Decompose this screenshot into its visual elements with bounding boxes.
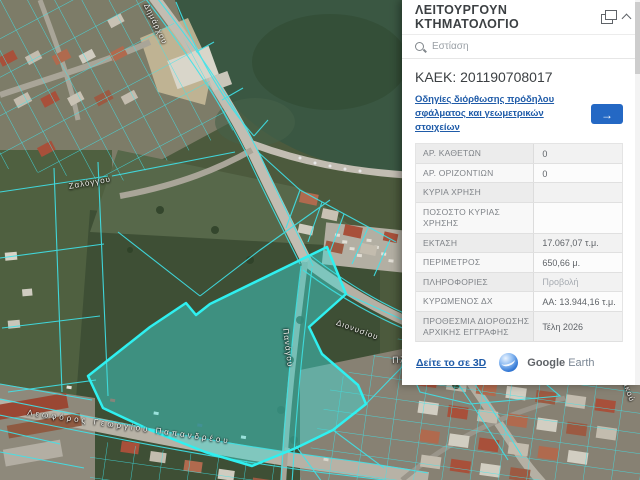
row-label: ΑΡ. ΚΑΘΕΤΩΝ xyxy=(416,144,533,162)
row-label: ΚΥΡΩΜΕΝΟΣ ΔΧ xyxy=(416,292,533,310)
row-value: 17.067,07 τ.μ. xyxy=(533,234,622,252)
row-label: ΑΡ. ΟΡΙΖΟΝΤΙΩΝ xyxy=(416,164,533,182)
table-row: ΠΡΟΘΕΣΜΙΑ ΔΙΟΡΘΩΣΗΣ ΑΡΧΙΚΗΣ ΕΓΓΡΑΦΗΣ Τέλ… xyxy=(416,312,622,343)
arrow-forward-button[interactable]: → xyxy=(591,104,623,124)
table-row: ΚΥΡΙΑ ΧΡΗΣΗ xyxy=(416,183,622,202)
chevron-up-icon[interactable] xyxy=(622,14,632,24)
table-row: ΑΡ. ΟΡΙΖΟΝΤΙΩΝ 0 xyxy=(416,164,622,183)
row-label: ΠΛΗΡΟΦΟΡΙΕΣ xyxy=(416,273,533,291)
row-label: ΠΕΡΙΜΕΤΡΟΣ xyxy=(416,253,533,271)
panel-scrollbar[interactable] xyxy=(635,0,640,385)
panel-title: ΛΕΙΤΟΥΡΓΟΥΝ ΚΤΗΜΑΤΟΛΟΓΙΟ xyxy=(415,3,601,31)
view-details-link[interactable]: Προβολή xyxy=(533,273,622,291)
parcel-info-panel: ΛΕΙΤΟΥΡΓΟΥΝ ΚΤΗΜΑΤΟΛΟΓΙΟ Εστίαση ΚΑΕΚ: 2… xyxy=(402,0,640,385)
focus-search-bar[interactable]: Εστίαση xyxy=(402,34,640,59)
scrollbar-thumb[interactable] xyxy=(635,2,640,74)
attributes-table: ΑΡ. ΚΑΘΕΤΩΝ 0 ΑΡ. ΟΡΙΖΟΝΤΙΩΝ 0 ΚΥΡΙΑ ΧΡΗ… xyxy=(415,143,623,342)
table-row: ΠΕΡΙΜΕΤΡΟΣ 650,66 μ. xyxy=(416,253,622,272)
row-value: 0 xyxy=(533,144,622,162)
row-value xyxy=(533,183,622,201)
table-row: ΠΟΣΟΣΤΟ ΚΥΡΙΑΣ ΧΡΗΣΗΣ xyxy=(416,203,622,234)
google-earth-label[interactable]: Google Earth xyxy=(527,357,594,369)
table-row: ΚΥΡΩΜΕΝΟΣ ΔΧ ΑΑ: 13.944,16 τ.μ. xyxy=(416,292,622,311)
row-label: ΠΟΣΟΣΤΟ ΚΥΡΙΑΣ ΧΡΗΣΗΣ xyxy=(416,203,533,233)
row-label: ΚΥΡΙΑ ΧΡΗΣΗ xyxy=(416,183,533,201)
row-value: 650,66 μ. xyxy=(533,253,622,271)
row-value: 0 xyxy=(533,164,622,182)
row-value: Τέλη 2026 xyxy=(533,312,622,342)
table-row: ΑΡ. ΚΑΘΕΤΩΝ 0 xyxy=(416,144,622,163)
row-label: ΠΡΟΘΕΣΜΙΑ ΔΙΟΡΘΩΣΗΣ ΑΡΧΙΚΗΣ ΕΓΓΡΑΦΗΣ xyxy=(416,312,533,342)
view-in-3d-link[interactable]: Δείτε το σε 3D xyxy=(416,357,486,369)
layers-window-icon[interactable] xyxy=(601,14,613,24)
search-input[interactable]: Εστίαση xyxy=(432,41,469,52)
correction-instructions-link[interactable]: Οδηγίες διόρθωσης πρόδηλου σφάλματος και… xyxy=(415,93,583,134)
cadastre-app-window: Δημάρχου Ζαλόγγου Διονυσίου Διονυσίου Πλ… xyxy=(0,0,640,480)
kaek-code: ΚΑΕΚ: 201190708017 xyxy=(415,69,623,85)
google-wordmark: Google xyxy=(527,357,565,369)
panel-header: ΛΕΙΤΟΥΡΓΟΥΝ ΚΤΗΜΑΤΟΛΟΓΙΟ xyxy=(402,0,640,34)
row-value xyxy=(533,203,622,233)
earth-wordmark: Earth xyxy=(568,357,594,369)
row-label: ΕΚΤΑΣΗ xyxy=(416,234,533,252)
google-earth-icon[interactable] xyxy=(499,353,518,372)
search-icon xyxy=(415,42,424,51)
table-row: ΠΛΗΡΟΦΟΡΙΕΣ Προβολή xyxy=(416,273,622,292)
table-row: ΕΚΤΑΣΗ 17.067,07 τ.μ. xyxy=(416,234,622,253)
row-value: ΑΑ: 13.944,16 τ.μ. xyxy=(533,292,622,310)
